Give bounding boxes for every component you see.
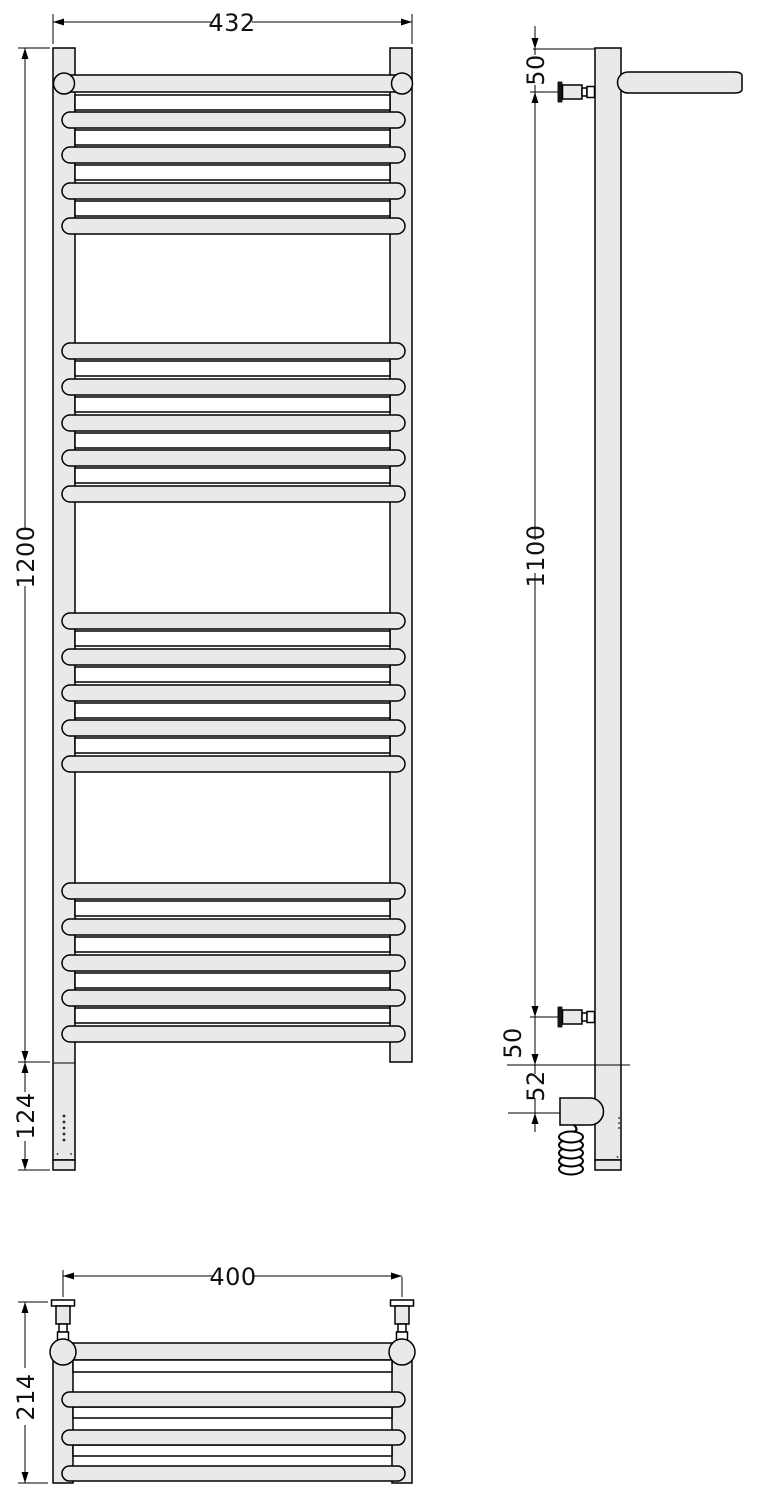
dim-top-width: 400 (63, 1263, 402, 1297)
front-view: 432 1200 124 (12, 9, 413, 1170)
front-rung (62, 415, 405, 431)
dim-side-span: 1100 (522, 92, 550, 1017)
back-rung (75, 201, 390, 216)
towel-rail-drawing: 432 1200 124 (0, 0, 757, 1500)
back-rung (75, 397, 390, 412)
front-rung (62, 379, 405, 395)
front-rung (62, 883, 405, 899)
top-view-back-rung (73, 1445, 392, 1456)
wall-bracket-top (558, 82, 595, 103)
top-view-back-rung (73, 1360, 392, 1372)
side-rail-bottom-cap (595, 1160, 621, 1170)
front-rung (62, 218, 405, 234)
dim-label-1200: 1200 (12, 525, 40, 588)
front-rung (62, 1026, 405, 1042)
dim-label-432: 432 (208, 9, 255, 37)
top-view: 400 214 (12, 1263, 415, 1483)
bracket-collar (587, 87, 595, 98)
collector-cap-right (392, 73, 413, 94)
back-rung (75, 165, 390, 180)
dim-front-height: 1200 (12, 48, 50, 1062)
top-view-left-rail (53, 1348, 73, 1483)
top-view-front-rung (62, 1392, 405, 1407)
front-rung (62, 990, 405, 1006)
dim-front-width: 432 (53, 9, 412, 44)
top-view-collector-bar (63, 1343, 402, 1360)
top-view-front-rung (62, 1430, 405, 1445)
bracket-body (395, 1306, 409, 1324)
front-rung (62, 955, 405, 971)
dim-label-50-bottom: 50 (499, 1027, 527, 1059)
back-rung (75, 468, 390, 483)
bracket-flange (391, 1300, 414, 1306)
bracket-body (563, 85, 583, 99)
back-rung (75, 433, 390, 448)
bracket-collar (587, 1012, 595, 1023)
back-rung (75, 738, 390, 753)
top-view-collector-left (50, 1339, 76, 1365)
technical-drawing-canvas: 432 1200 124 (0, 0, 757, 1500)
dim-label-214: 214 (12, 1373, 40, 1420)
dim-label-400: 400 (209, 1263, 256, 1291)
bracket-flange (52, 1300, 75, 1306)
bracket-neck (398, 1324, 406, 1332)
collector-cap-left (54, 73, 75, 94)
front-rung (62, 649, 405, 665)
bracket-neck (59, 1324, 67, 1332)
dim-label-52: 52 (522, 1070, 550, 1102)
dim-side-bottom-offset: 50 (499, 1017, 558, 1065)
back-rung (75, 95, 390, 110)
side-view: 50 1100 50 52 (499, 26, 742, 1175)
back-rung (75, 937, 390, 952)
front-rung (62, 756, 405, 772)
back-rung (75, 703, 390, 718)
back-rung (75, 631, 390, 646)
front-rung (62, 486, 405, 502)
dim-label-1100: 1100 (522, 524, 550, 587)
back-rung (75, 973, 390, 988)
front-rung (62, 613, 405, 629)
heating-element (560, 1098, 604, 1125)
front-rung (62, 685, 405, 701)
top-view-bracket-left (52, 1300, 75, 1340)
top-view-bracket-right (391, 1300, 414, 1340)
top-view-collector-right (389, 1339, 415, 1365)
dim-label-50-top: 50 (522, 54, 550, 86)
side-rail (595, 48, 621, 1160)
top-view-back-rung (73, 1407, 392, 1418)
front-rung (62, 112, 405, 128)
dim-top-depth: 214 (12, 1302, 48, 1483)
bracket-body (56, 1306, 70, 1324)
back-rung (75, 667, 390, 682)
power-cable-coil (559, 1132, 583, 1175)
bracket-body (563, 1010, 583, 1024)
back-rung (75, 130, 390, 145)
top-shelf-bar (64, 75, 402, 92)
top-view-right-rail (392, 1348, 412, 1483)
front-rung (62, 450, 405, 466)
top-view-front-rung (62, 1466, 405, 1481)
back-rung (75, 1008, 390, 1023)
front-rung (62, 147, 405, 163)
back-rung (75, 901, 390, 916)
front-rung (62, 720, 405, 736)
dim-front-electronics: 124 (12, 1062, 50, 1170)
front-rung (62, 919, 405, 935)
front-rung (62, 183, 405, 199)
dim-label-124: 124 (12, 1092, 40, 1139)
wall-bracket-bottom (558, 1007, 595, 1028)
shelf-bar-side (618, 72, 743, 93)
left-rail-bottom-cap (53, 1160, 75, 1170)
back-rung (75, 361, 390, 376)
front-rung (62, 343, 405, 359)
right-rail (390, 48, 412, 1062)
